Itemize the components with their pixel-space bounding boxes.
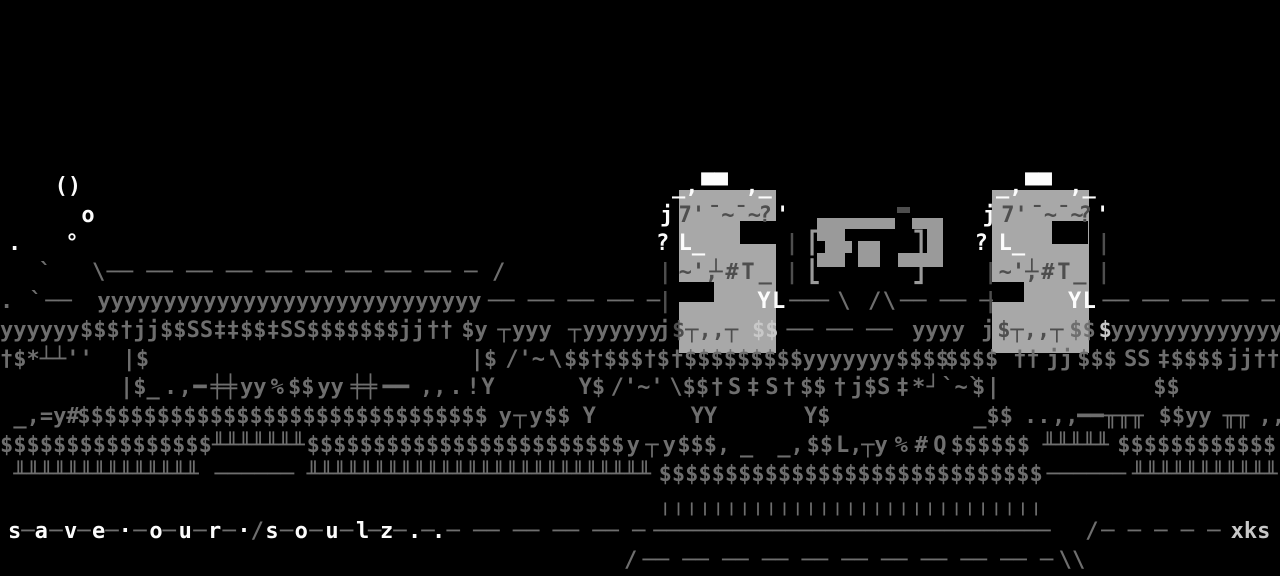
art-run: / [492,259,505,288]
art-row-17: ╷╷╷╷╷╷╷╷╷╷╷╷╷╷╷╷╷╷╷╷╷╷╷╷╷╷╷╷╷ [0,490,1280,519]
art-run: $$$$$$$$$$$$$$$$$$$$$$$$$$$$$$$ [77,403,488,432]
art-run: .. [1024,403,1051,432]
art-run: ── ── ── ── ── ── ── ── ── ── ─ [643,547,1054,576]
art-run: ── ── ── ── ─ [488,288,660,317]
art-run: $$ [1069,317,1096,346]
art-run: _, [672,173,699,202]
art-run: $$$$$$$$$ [684,346,803,375]
art-run: \ [92,259,105,288]
art-run: ─── [789,288,829,317]
art-run: $$ [1153,374,1180,403]
art-run: 7' [679,202,706,231]
art-run: ⎤ [912,230,925,259]
art-run: j$S [851,374,891,403]
art-run: ,_ [1069,173,1096,202]
art-run: yyyy [912,317,965,346]
art-run: _, [777,432,804,461]
art-run: o [149,518,162,547]
art-run: $$ [160,317,187,346]
art-run: , [179,374,192,403]
art-run: z [380,518,393,547]
art-run: ╥╥ [1223,403,1250,432]
art-run: |$_ [120,374,160,403]
art-run: · [237,518,250,547]
art-run: † [783,374,796,403]
art-run: . [164,374,177,403]
art-run: _, [996,173,1023,202]
art-run: $$$$$$$ [307,317,400,346]
art-run: ‡‡ [213,317,240,346]
art-run: † [671,346,684,375]
art-run: |$ [471,346,498,375]
art-run: ,, [420,374,447,403]
art-run: % [271,374,284,403]
art-run: ? [759,202,772,231]
art-run: T [1057,259,1070,288]
art-run: | [1097,230,1110,259]
art-run: xks [1231,518,1271,547]
art-run: yy [317,374,344,403]
art-run: () [55,173,82,202]
art-run: yyyyyy [583,317,662,346]
art-run: $$$$ [896,346,949,375]
art-run: $$ [800,374,827,403]
art-run: Y [583,403,596,432]
art-run: $$ [288,374,315,403]
art-run: | [984,259,997,288]
art-run: % [895,432,908,461]
art-run: $$ [544,403,571,432]
art-run: ── ── ── [787,317,893,346]
art-run: ━━ [1077,403,1104,432]
art-row-11: yyyyyy$$$†jj$$SS‡‡$$‡SS$$$$$$$jj††$y┬yyy… [0,317,1280,346]
art-run: ─ [193,518,206,547]
art-run: jj [133,317,160,346]
art-run: Y$ [579,374,606,403]
art-row-15: $$$$$$$$$$$$$$$$╨╨╨╨╨╨╨$$$$$$$$$$$$$$$$$… [0,432,1280,461]
art-run: 7' [1001,202,1028,231]
art-row-16: ╨╨╨╨╨╨╨╨╨╨╨╨╨╨──────╨╨╨╨╨╨╨╨╨╨╨╨╨╨╨╨╨╨╨╨… [0,461,1280,490]
art-run: ¯~¯~ [1031,202,1084,231]
art-run: # [1041,259,1054,288]
art-run: ─ [105,518,118,547]
art-row-13: |$_.,━╪╪yy%$$yy╪╪━━,,.!YY$/'~'\$$†S‡S†$$… [0,374,1280,403]
art-run: s [265,518,278,547]
art-run: ╪╪ [211,374,238,403]
art-run: ‡ [896,374,909,403]
art-run: | [1097,259,1110,288]
art-run: ╨╨╨╨╨ [1043,432,1109,461]
art-run: u [179,518,192,547]
art-run: yyy [512,317,552,346]
art-run: / [624,547,637,576]
art-run: † [833,374,846,403]
art-run: $$ [752,317,779,346]
art-run: ' [1096,202,1109,231]
art-run: $ [972,374,985,403]
art-row-18: s─a─v─e─·─o─u─r─·/s─o─u─l─z─.─.─ ── ── ─… [0,518,1280,547]
art-run: | [984,288,997,317]
art-run: \ [549,346,562,375]
art-row-7: oj7'¯~¯~?'j7'¯~¯~?' [0,202,1280,231]
art-run: | [659,288,672,317]
art-run: ╨╨╨╨╨╨╨ [212,432,305,461]
art-run: j [983,202,996,231]
art-run: ┴ [709,259,722,288]
art-run: ─ [340,518,353,547]
art-run: ? [1079,202,1092,231]
art-run: o [81,202,94,231]
art-run: L_ [999,230,1026,259]
art-run: yyyyyyyyyyyyyyyyyyyyyyyyyyyyy [97,288,481,317]
art-run: ╥╥╥ [1104,403,1144,432]
art-run: ‡ [1157,346,1170,375]
art-run: $$$$$$ [951,432,1030,461]
art-run: Y [757,288,770,317]
art-run: y [499,403,512,432]
art-run: SS [280,317,307,346]
art-run: † [120,317,133,346]
art-run: L, [836,432,863,461]
art-run: a [35,518,48,547]
art-run: / [251,518,264,547]
art-run: _ [759,259,772,288]
art-run: ╨╨╨╨╨╨╨╨╨╨╨╨╨╨╨╨╨╨╨╨╨╨╨╨╨╨ [307,461,651,490]
art-run: r [208,518,221,547]
art-run: . [0,288,13,317]
art-run: ┴ [1025,259,1038,288]
art-run: j [981,317,994,346]
art-run: . [408,518,421,547]
art-run: y [529,403,542,432]
art-run: ─ [280,518,293,547]
art-run: u [325,518,338,547]
art-run: ,, [1259,403,1280,432]
art-run: jj [1047,346,1074,375]
art-run: ┘ [927,374,940,403]
art-run: jj [399,317,426,346]
art-run: | [987,374,1000,403]
art-run: Y [1068,288,1081,317]
art-run: ────── [1047,461,1126,490]
art-run: ─ [393,518,406,547]
art-run: ┬ [497,317,510,346]
art-run: | [785,230,798,259]
art-run: $$$$$$$$$$$$$$$$ [0,432,212,461]
art-run: ¯~¯~ [708,202,761,231]
art-run: e [92,518,105,547]
art-run: ━━ [383,374,410,403]
art-run: †$*┴┴'' [0,346,93,375]
art-run: $$yy [1159,403,1212,432]
art-run: j [660,202,673,231]
art-run: yyyyyyyyyyyyy [1111,317,1280,346]
art-run: ╨╨╨╨╨╨╨╨╨╨╨ [1132,461,1278,490]
art-run: $┬,,┬ [672,317,738,346]
art-run: ? [656,230,669,259]
art-run: /'~' [611,374,664,403]
art-run: * [912,374,925,403]
art-run: . [432,518,445,547]
art-run: Y$ [804,403,831,432]
art-run: . [8,230,21,259]
art-run: \ [837,288,850,317]
art-run: yyyyyyy [803,346,896,375]
art-run: ─ [49,518,62,547]
art-run: ┬ [568,317,581,346]
art-run: \ [883,288,896,317]
art-run: # [915,432,928,461]
art-run: ⎦ [912,259,925,288]
art-run: $$$$ [1171,346,1224,375]
art-run: $$$$$$$$$$$$$$$$$$$$$$$$ [307,432,625,461]
art-run: ━ [193,374,206,403]
art-run: SS [187,317,214,346]
art-run: ── ── ── ── ─ [1103,288,1275,317]
art-run: ! [467,374,480,403]
art-run: ─ ─ ─ ─ ─ [1101,518,1220,547]
art-run: YY [691,403,718,432]
art-run: ‡ [747,374,760,403]
art-run: ` [39,259,52,288]
art-run: ° [65,230,78,259]
art-row-9: `\── ── ── ── ── ── ── ── ── ─/|~',┴#T_|… [0,259,1280,288]
art-run: L [772,288,785,317]
art-run: L [1083,288,1096,317]
art-run: † [711,374,724,403]
art-run: ─ [163,518,176,547]
art-run: \ [1059,547,1072,576]
art-run: †† [1253,346,1280,375]
art-row-14: _,=y#$$$$$$$$$$$$$$$$$$$$$$$$$$$$$$$y┬y$… [0,403,1280,432]
art-run: v [64,518,77,547]
art-run: ─ [77,518,90,547]
art-run: . [449,374,462,403]
art-run: o [295,518,308,547]
art-run: s [8,518,21,547]
art-run: L_ [679,230,706,259]
art-run: / [1085,518,1098,547]
art-run: ,, [1052,403,1079,432]
art-run: ? [975,230,988,259]
art-run: jj [1227,346,1254,375]
art-run: Y [481,374,494,403]
art-run: ` [29,288,42,317]
art-run: †† [1013,346,1040,375]
art-run: SS [1124,346,1151,375]
art-run: $┬,,┬ [997,317,1063,346]
art-run: ─ [21,518,34,547]
art-run: ▀▀ [1025,173,1052,202]
art-run: Q [933,432,946,461]
art-run: _ [740,432,753,461]
ascii-art-screen: ()_,▀▀,__,▀▀,_oj7'¯~¯~?'j7'¯~¯~?'.°?L_|⎡… [0,0,1280,576]
art-run: ⎣ [808,259,821,288]
art-run: / [868,288,881,317]
art-run: ⎡ [808,230,821,259]
art-run: $$$ [80,317,120,346]
art-run: $$$$$$$$$$$$$$$$$$$$$$$$$$$$$ [659,461,1043,490]
art-run: $$$, [677,432,730,461]
art-run: ╪╪ [351,374,378,403]
art-run: ─ [309,518,322,547]
art-run: $$ [807,432,834,461]
art-run: | [785,259,798,288]
art-run: ╨╨╨╨╨╨╨╨╨╨╨╨╨╨ [13,461,198,490]
art-run: y [663,432,676,461]
art-run: ▀▀ [701,173,728,202]
art-run: yy [240,374,267,403]
art-run: ────────────────────────────── [653,518,1050,547]
art-run: ────── [215,461,294,490]
art-run: ── ── ── ── ── ── ── ── ── ─ [107,259,478,288]
art-run: ' [776,202,789,231]
art-run: ┬ [513,403,526,432]
art-run: ── ── ─ [900,288,993,317]
art-row-6: ()_,▀▀,__,▀▀,_ [0,173,1280,202]
art-run: ── [45,288,72,317]
art-run: j [657,317,670,346]
art-run: ─ ── ── ── ── ─ [447,518,646,547]
art-run: y [627,432,640,461]
art-run: yyyyyy [0,317,79,346]
art-row-8: .°?L_|⎡⎤?L_| [0,230,1280,259]
art-run: \ [1072,547,1085,576]
art-run: $y [461,317,488,346]
art-row-12: †$*┴┴''|$|$/'~'\$$†$$$†$†$$$$$$$$$yyyyyy… [0,346,1280,375]
art-run: _ [1073,259,1086,288]
art-run: $$ [683,374,710,403]
art-run: ‡ [267,317,280,346]
art-run: S [728,374,741,403]
art-run: S [765,374,778,403]
art-run: $$†$$$†$ [564,346,670,375]
art-run: _$$ [973,403,1013,432]
art-run: ╷╷╷╷╷╷╷╷╷╷╷╷╷╷╷╷╷╷╷╷╷╷╷╷╷╷╷╷╷ [659,490,1043,519]
art-run: ┬y [861,432,888,461]
art-run: $$$ [1077,346,1117,375]
art-run: # [725,259,738,288]
art-run: ─ [223,518,236,547]
art-run: ─ [133,518,146,547]
art-run: T [741,259,754,288]
art-run: _,=y# [13,403,79,432]
art-run: $$$$$$$$$$$$ [1117,432,1276,461]
art-run: | [659,259,672,288]
art-run: · [119,518,132,547]
art-run: $$$$ [945,346,998,375]
art-row-10: .`──yyyyyyyyyyyyyyyyyyyyyyyyyyyyy── ── ─… [0,288,1280,317]
art-run: |$ [123,346,150,375]
art-run: \ [669,374,682,403]
art-run: $$ [240,317,267,346]
art-run: ┬ [645,432,658,461]
art-row-19: /── ── ── ── ── ── ── ── ── ── ─\\ [0,547,1280,576]
art-run: ,_ [745,173,772,202]
art-run: †† [427,317,454,346]
